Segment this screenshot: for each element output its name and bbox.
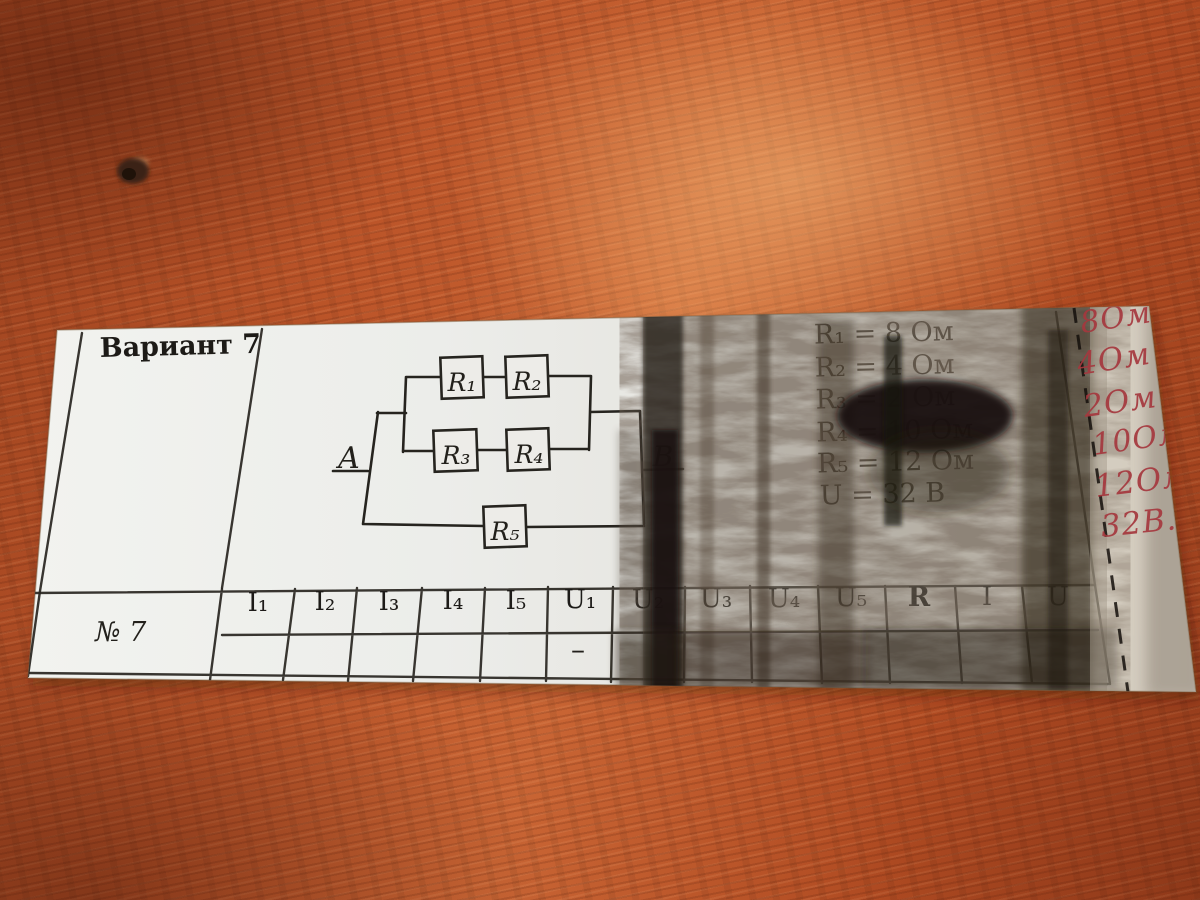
- col-header-i5: I₅: [506, 586, 527, 616]
- col-header-i3: I₃: [379, 587, 400, 617]
- table-row-label: № 7: [94, 617, 147, 648]
- node-a-label: A: [335, 441, 360, 476]
- wood-knot-core: [122, 168, 136, 180]
- toner-table-dark-1: [862, 628, 1117, 688]
- resistor-label-r1: R₁: [447, 368, 477, 397]
- col-header-i2: I₂: [315, 587, 336, 617]
- toner-table-dark-3: [614, 630, 684, 685]
- resistor-label-r4: R₄: [514, 440, 544, 469]
- variant-label: Вариант 7: [99, 329, 261, 364]
- toner-blotch-shade: [870, 432, 1010, 512]
- wood-knot: [117, 157, 149, 184]
- resistor-label-r3: R₃: [441, 441, 471, 470]
- answer-cell-dash: –: [571, 633, 585, 666]
- resistor-label-r5: R₅: [490, 517, 520, 546]
- col-header-i4: I₄: [443, 586, 464, 616]
- photo-scene: Вариант 7 № 7 I₁ I₂ I₃ I₄ I₅ U₁ U₂ U₃ U₄…: [0, 0, 1200, 900]
- toner-table-dark-2: [676, 632, 866, 687]
- col-header-u1: U₁: [564, 585, 596, 615]
- resistor-label-r2: R₂: [512, 367, 542, 396]
- col-header-i1: I₁: [248, 588, 269, 618]
